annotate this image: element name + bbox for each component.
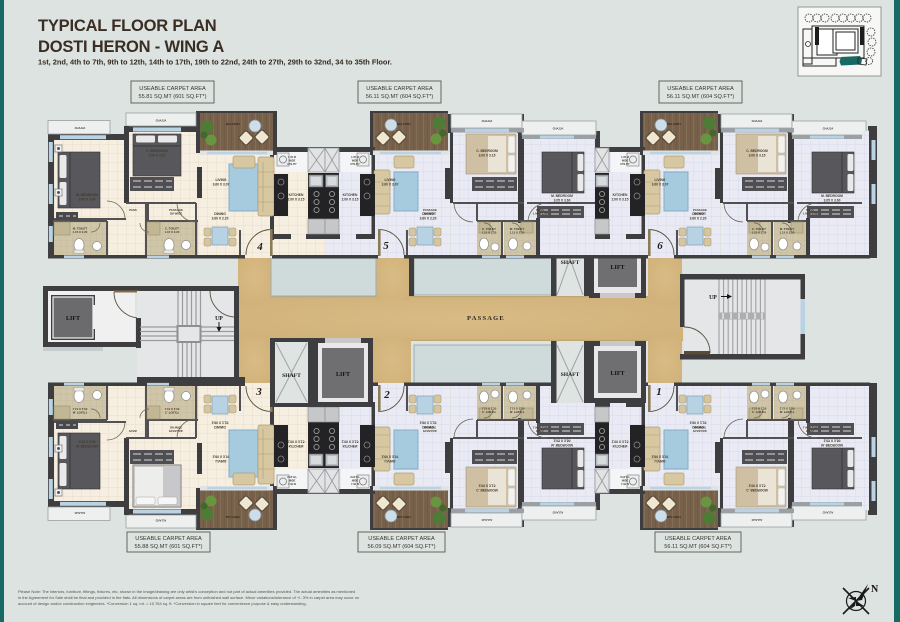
svg-text:M. BEDROOM: M. BEDROOM xyxy=(551,194,573,198)
svg-text:1M WIDE: 1M WIDE xyxy=(170,212,182,216)
svg-text:LIFT: LIFT xyxy=(66,316,80,322)
svg-text:LIFT: LIFT xyxy=(336,372,350,378)
svg-text:PASSAGE: PASSAGE xyxy=(467,315,505,322)
svg-text:3.60 X 3.07: 3.60 X 3.07 xyxy=(213,183,230,187)
svg-text:UP: UP xyxy=(709,295,717,301)
svg-text:N: N xyxy=(871,584,879,595)
svg-text:TYPICAL FLOOR PLAN: TYPICAL FLOOR PLAN xyxy=(38,17,217,35)
svg-text:1.15 X 2.20: 1.15 X 2.20 xyxy=(510,231,525,235)
svg-text:3.60 X 3.07: 3.60 X 3.07 xyxy=(382,183,399,187)
svg-text:UTILITY: UTILITY xyxy=(350,163,360,166)
svg-text:2: 2 xyxy=(383,389,390,401)
svg-text:3.05 X 3.60: 3.05 X 3.60 xyxy=(554,199,571,203)
svg-text:3.60 X 2.20: 3.60 X 2.20 xyxy=(420,217,437,221)
svg-text:USEABLE CARPET AREA: USEABLE CARPET AREA xyxy=(368,536,435,542)
svg-text:USEABLE CARPET AREA: USEABLE CARPET AREA xyxy=(665,536,732,542)
svg-text:C. BEDROOM: C. BEDROOM xyxy=(476,149,498,153)
svg-text:KITCHEN: KITCHEN xyxy=(343,193,358,197)
svg-text:account of design and/or const: account of design and/or construction ex… xyxy=(18,601,307,606)
svg-text:56.11 SQ.MT (604 SQ.FT*): 56.11 SQ.MT (604 SQ.FT*) xyxy=(366,94,434,100)
svg-text:3.00 X 3.15: 3.00 X 3.15 xyxy=(479,154,496,158)
svg-text:2.00 X 3.15: 2.00 X 3.15 xyxy=(342,198,359,202)
svg-text:UTILITY: UTILITY xyxy=(287,163,297,166)
svg-text:LIFT: LIFT xyxy=(610,265,624,271)
svg-text:56.11 SQ.MT (604 SQ.FT*): 56.11 SQ.MT (604 SQ.FT*) xyxy=(667,94,735,100)
svg-text:LIFT: LIFT xyxy=(610,371,624,377)
svg-text:3: 3 xyxy=(255,386,262,398)
svg-text:55.88 SQ.MT (601 SQ.FT*): 55.88 SQ.MT (601 SQ.FT*) xyxy=(135,544,203,550)
svg-text:56.09 SQ.MT (604 SQ.FT*): 56.09 SQ.MT (604 SQ.FT*) xyxy=(368,544,436,550)
svg-text:SHAFT: SHAFT xyxy=(282,373,301,379)
svg-text:3.60 X 2.20: 3.60 X 2.20 xyxy=(212,217,229,221)
svg-text:56.11 SQ.MT (604 SQ.FT*): 56.11 SQ.MT (604 SQ.FT*) xyxy=(664,544,732,550)
svg-text:LIVING: LIVING xyxy=(216,178,227,182)
svg-text:DINING: DINING xyxy=(214,212,226,216)
svg-text:USEABLE CARPET AREA: USEABLE CARPET AREA xyxy=(139,86,206,92)
svg-text:BALCONY: BALCONY xyxy=(226,122,240,126)
svg-text:CHAJJA: CHAJJA xyxy=(553,127,564,131)
svg-text:2.00 X 3.15: 2.00 X 3.15 xyxy=(288,198,305,202)
svg-text:3.00 X 3.15: 3.00 X 3.15 xyxy=(149,154,166,158)
svg-text:SHAFT: SHAFT xyxy=(561,372,580,378)
svg-text:M. BEDROOM: M. BEDROOM xyxy=(76,193,98,197)
svg-text:USEABLE CARPET AREA: USEABLE CARPET AREA xyxy=(366,86,433,92)
svg-text:1.00 X 1.00: 1.00 X 1.00 xyxy=(533,212,548,216)
svg-text:in the Agreement for Sale shal: in the Agreement for Sale shall be final… xyxy=(18,595,359,600)
svg-text:CHAJJA: CHAJJA xyxy=(482,119,493,123)
svg-text:LIVING: LIVING xyxy=(385,178,396,182)
svg-text:BALCONY: BALCONY xyxy=(397,122,411,126)
svg-text:4: 4 xyxy=(256,241,263,253)
svg-text:KITCHEN: KITCHEN xyxy=(289,193,304,197)
svg-text:1.15 X 2.20: 1.15 X 2.20 xyxy=(165,230,180,234)
svg-text:6: 6 xyxy=(657,240,663,252)
svg-text:USEABLE CARPET AREA: USEABLE CARPET AREA xyxy=(135,536,202,542)
svg-text:CHAJJA: CHAJJA xyxy=(75,126,86,130)
svg-text:1: 1 xyxy=(656,386,662,398)
svg-text:1.15 X 2.20: 1.15 X 2.20 xyxy=(73,230,88,234)
svg-text:5: 5 xyxy=(383,240,389,252)
svg-text:UP: UP xyxy=(215,316,223,322)
svg-text:3.05 X 3.60: 3.05 X 3.60 xyxy=(79,198,96,202)
svg-text:DOSTI HERON - WING A: DOSTI HERON - WING A xyxy=(38,38,224,56)
svg-text:1.15 X 2.20: 1.15 X 2.20 xyxy=(482,231,497,235)
svg-text:C. BEDROOM: C. BEDROOM xyxy=(146,149,168,153)
svg-text:PASS: PASS xyxy=(129,208,137,212)
svg-text:SHAFT: SHAFT xyxy=(561,260,580,266)
svg-text:55.81 SQ.MT (601 SQ.FT*): 55.81 SQ.MT (601 SQ.FT*) xyxy=(139,94,207,100)
svg-text:Please Note: The interiors, fu: Please Note: The interiors, furniture, f… xyxy=(18,589,355,594)
svg-text:USEABLE CARPET AREA: USEABLE CARPET AREA xyxy=(667,86,734,92)
svg-text:1M WIDE: 1M WIDE xyxy=(424,212,436,216)
svg-text:1st, 2nd, 4th to 7th, 9th to 1: 1st, 2nd, 4th to 7th, 9th to 12th, 14th … xyxy=(38,58,392,67)
svg-text:CHAJJA: CHAJJA xyxy=(156,119,167,123)
